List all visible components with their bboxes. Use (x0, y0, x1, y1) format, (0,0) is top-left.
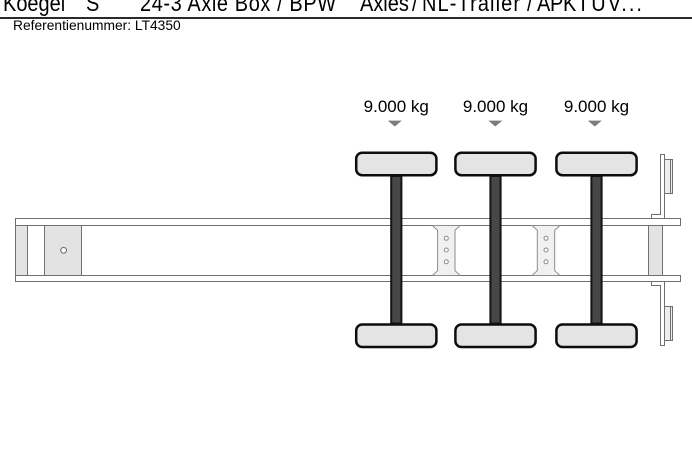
svg-text:9.000 kg: 9.000 kg (463, 97, 528, 116)
svg-text:9.000 kg: 9.000 kg (364, 97, 429, 116)
svg-text:9.000 kg: 9.000 kg (564, 97, 629, 116)
